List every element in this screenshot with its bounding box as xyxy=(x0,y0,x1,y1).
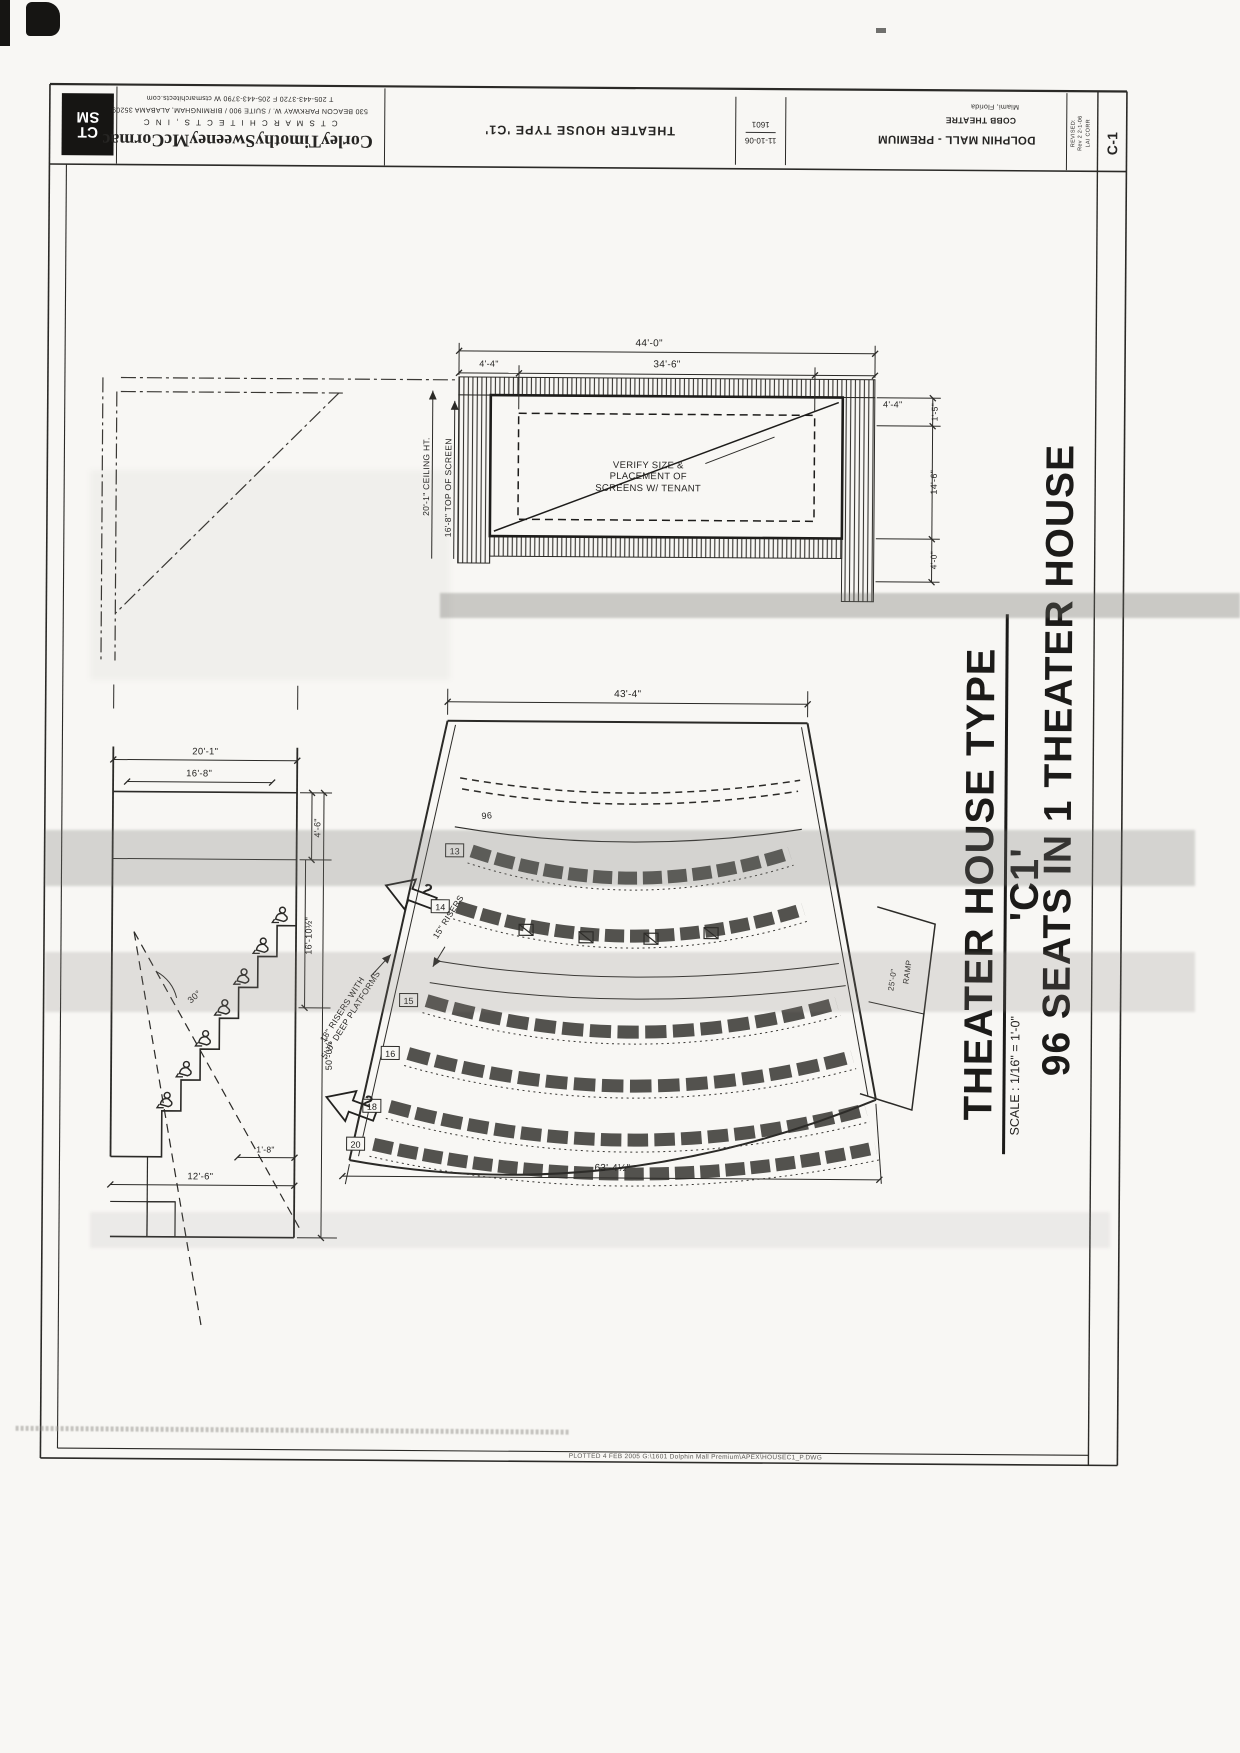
dim-section-top2: 16'-8" xyxy=(186,768,212,780)
sheet-title: THEATER HOUSE TYPE 'C1' xyxy=(484,122,675,138)
dim-screen-overall: 44'-0" xyxy=(636,338,663,350)
firm-address: 530 BEACON PARKWAY W. / SUITE 900 / BIRM… xyxy=(112,104,368,114)
scanned-drawing-sheet: 131415161820 CT SM T 205-443-3720 F 205-… xyxy=(0,0,1240,1753)
dim-screen-r2: 14'-6" xyxy=(929,470,940,495)
screen-note-line: PLACEMENT OF xyxy=(595,471,701,483)
logo-top: CT xyxy=(76,124,99,139)
issue-date: 11-10-06 xyxy=(745,136,776,145)
revision-line: Rev 2 2-1-06 xyxy=(1078,115,1086,150)
drawing-subtitle: 96 SEATS IN 1 THEATER HOUSE xyxy=(1034,360,1084,1160)
dim-screen-r3: 4'-0" xyxy=(929,551,939,570)
screen-note-line: SCREENS W/ TENANT xyxy=(595,483,701,495)
dim-plan-bottom: 63'-4½" xyxy=(594,1163,630,1175)
firm-name: CorleyTimothySweeneyMcCormac xyxy=(102,129,373,152)
revision-line: LAI CORR xyxy=(1085,116,1093,151)
dim-section-a: 4'-6" xyxy=(312,818,323,837)
screen-note: VERIFY SIZE & PLACEMENT OF SCREENS W/ TE… xyxy=(595,460,701,495)
project-number-date-box: 11-10-06 1601 xyxy=(737,104,783,162)
dim-screen-right: 4'-4" xyxy=(883,399,902,410)
seat-row-arc xyxy=(457,907,803,937)
row-count-tag: 16 xyxy=(385,1049,395,1059)
section-seated-figures xyxy=(157,906,287,1108)
firm-logo: CT SM xyxy=(76,109,99,139)
dim-section-bot1: 1'-8" xyxy=(256,1144,275,1154)
dim-section-b: 16'-10½" xyxy=(304,917,315,955)
row-count-tag: 15 xyxy=(404,996,414,1006)
row-count-tag: 14 xyxy=(435,902,445,912)
dim-screen-left: 4'-4" xyxy=(479,359,498,370)
dim-screen-center: 34'-6" xyxy=(653,359,680,371)
row-count-tag: 20 xyxy=(351,1140,361,1150)
sheet-content: 131415161820 CT SM T 205-443-3720 F 205-… xyxy=(0,0,1240,1753)
dim-plan-width: 43'-4" xyxy=(614,689,641,701)
total-seat-count: 96 xyxy=(481,810,492,822)
dim-section-bot2: 12'-6" xyxy=(187,1171,213,1183)
project-location: Miami, Florida xyxy=(971,101,1019,110)
sheet-number: C-1 xyxy=(1104,132,1121,156)
screen-note-line: VERIFY SIZE & xyxy=(595,460,701,472)
seat-row-arc xyxy=(390,1106,866,1141)
dim-screen-r1: 1'-5" xyxy=(930,403,940,422)
firm-type: C T S M A R C H I T E C T S , I N C xyxy=(142,117,338,128)
client-name: COBB THEATRE xyxy=(945,115,1016,126)
label-ceiling-height: 20'-1" CEILING HT. xyxy=(421,437,432,516)
logo-bottom: SM xyxy=(76,109,99,124)
project-name: DOLPHIN MALL - PREMIUM xyxy=(878,131,1036,146)
drawing-scale: SCALE : 1/16" = 1'-0" xyxy=(1008,996,1023,1156)
revision-block: REVISED: Rev 2 2-1-06 LAI CORR xyxy=(1070,115,1093,151)
project-number: 1601 xyxy=(752,120,770,129)
dim-section-top1: 20'-1" xyxy=(192,746,218,758)
firm-contact: T 205-443-3720 F 205-443-3790 W ctsmarch… xyxy=(146,92,333,102)
label-top-of-screen: 16'-8" TOP OF SCREEN xyxy=(443,438,454,537)
seat-row-arc xyxy=(471,851,789,879)
drawing-title: THEATER HOUSE TYPE 'C1' xyxy=(956,614,1009,1154)
row-count-tag: 13 xyxy=(450,846,460,856)
